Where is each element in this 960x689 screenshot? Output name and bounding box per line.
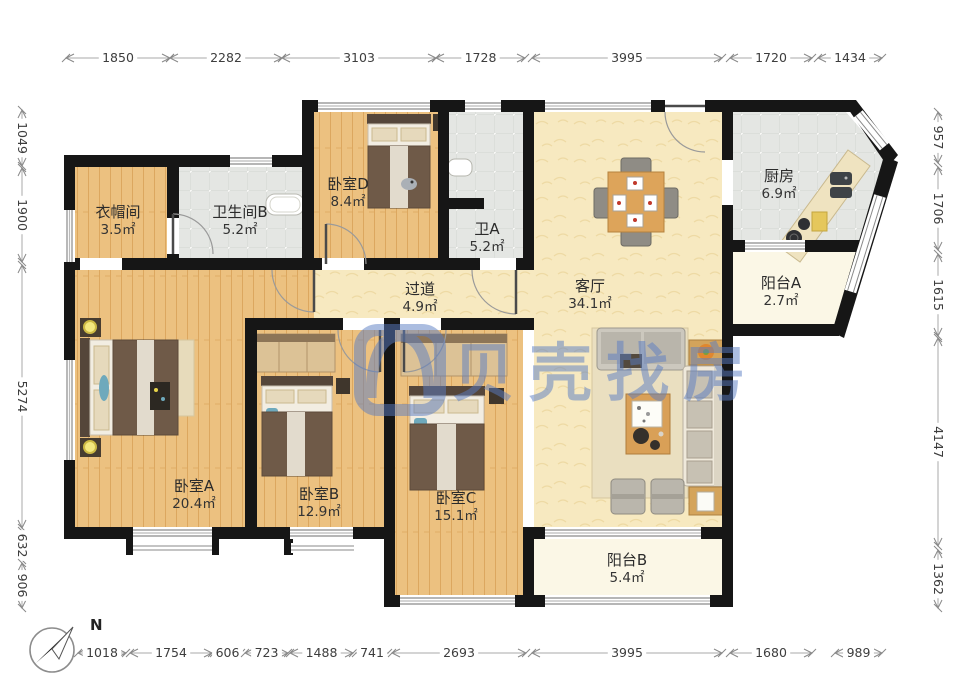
dim-right-2: 1615: [930, 250, 946, 340]
furniture-item: [659, 432, 664, 437]
dim-top-1: 2282: [166, 50, 286, 66]
compass: N: [30, 616, 103, 672]
wall-segment: [523, 112, 534, 270]
dim-top-0: 1850: [62, 50, 174, 66]
furniture-item: [633, 428, 649, 444]
dim-left-3: 632: [14, 527, 30, 564]
svg-text:2693: 2693: [443, 645, 475, 660]
room-name: 卧室A: [174, 477, 215, 495]
room-area: 6.9㎡: [762, 186, 797, 202]
svg-text:1434: 1434: [834, 50, 866, 65]
window: [545, 100, 651, 112]
room-name: 阳台B: [607, 551, 647, 569]
dim-top-6: 1434: [814, 50, 886, 66]
svg-text:4147: 4147: [931, 426, 946, 458]
svg-text:1488: 1488: [306, 645, 338, 660]
svg-text:1018: 1018: [86, 645, 118, 660]
room-name: 阳台A: [761, 274, 802, 292]
svg-text:1850: 1850: [102, 50, 134, 65]
room-area: 5.2㎡: [223, 222, 258, 238]
svg-text:1362: 1362: [931, 563, 946, 595]
furniture-item: [336, 378, 350, 394]
furniture-item: [150, 382, 170, 410]
svg-text:906: 906: [15, 574, 30, 598]
room-label-cloakroom: 衣帽间3.5㎡: [95, 203, 140, 238]
svg-text:1754: 1754: [155, 645, 187, 660]
dim-bottom-6: 2693: [388, 645, 530, 661]
furniture-item: [401, 178, 417, 190]
furniture-item: [633, 181, 637, 185]
furniture-item: [251, 334, 335, 342]
svg-text:1720: 1720: [755, 50, 787, 65]
svg-text:2282: 2282: [210, 50, 242, 65]
furniture-item: [687, 431, 712, 458]
window: [400, 595, 515, 607]
wall-segment: [245, 318, 343, 330]
wall-segment: [384, 318, 395, 607]
svg-text:3103: 3103: [343, 50, 375, 65]
wall-segment: [438, 112, 449, 270]
room-area: 5.2㎡: [470, 239, 505, 255]
wall-segment: [441, 318, 534, 330]
furniture-item: [287, 412, 305, 476]
dim-top-3: 1728: [432, 50, 529, 66]
furniture-item: [812, 212, 827, 231]
svg-text:3995: 3995: [611, 645, 643, 660]
wall-segment: [122, 258, 322, 270]
wall-segment: [167, 167, 179, 218]
furniture-item: [687, 461, 712, 483]
furniture-item: [617, 201, 621, 205]
dim-bottom-8: 1680: [726, 645, 816, 661]
furniture-item: [266, 390, 294, 403]
furniture-item: [633, 218, 637, 222]
dim-top-4: 3995: [528, 50, 726, 66]
svg-text:723: 723: [255, 645, 279, 660]
floor-plan-page: 贝壳找房 衣帽间3.5㎡卫生间B5.2㎡卧室D8.4㎡卫A5.2㎡厨房6.9㎡阳…: [0, 0, 960, 689]
window: [290, 527, 353, 539]
room-label-hallway: 过道4.9㎡: [403, 280, 438, 315]
dim-left-2: 5274: [14, 261, 30, 532]
dim-right-4: 1362: [930, 546, 946, 612]
dim-right-3: 4147: [930, 334, 946, 550]
dim-left-4: 906: [14, 559, 30, 612]
room-area: 20.4㎡: [172, 496, 216, 512]
dim-right-1: 1706: [930, 163, 946, 254]
room-area: 15.1㎡: [434, 508, 478, 524]
furniture-item: [798, 218, 810, 230]
room-name: 厨房: [764, 167, 794, 185]
wall-segment: [64, 155, 314, 167]
window: [133, 527, 212, 539]
wall-segment: [302, 100, 314, 270]
svg-text:1728: 1728: [465, 50, 497, 65]
room-name: 卧室C: [436, 489, 476, 507]
furniture-item: [261, 376, 333, 386]
furniture-item: [697, 492, 714, 511]
svg-text:957: 957: [931, 126, 946, 150]
window: [64, 360, 75, 460]
window: [745, 240, 805, 252]
furniture-item: [298, 390, 326, 403]
dim-bottom-9: 989: [831, 645, 886, 661]
room-name: 卧室B: [299, 485, 339, 503]
wall-segment: [438, 198, 484, 209]
dim-top-5: 1720: [726, 50, 816, 66]
furniture-item: [648, 201, 652, 205]
window: [465, 100, 501, 112]
dim-bottom-0: 1018: [74, 645, 130, 661]
window: [318, 100, 430, 112]
room-area: 2.7㎡: [764, 293, 799, 309]
furniture-item: [611, 494, 645, 499]
watermark-text: 贝壳找房: [452, 337, 760, 410]
room-label-balcony-a: 阳台A2.7㎡: [761, 274, 802, 309]
window: [545, 527, 701, 539]
dim-bottom-2: 606: [210, 645, 245, 661]
svg-text:1049: 1049: [15, 122, 30, 154]
svg-text:1706: 1706: [931, 193, 946, 225]
svg-text:632: 632: [15, 534, 30, 558]
furniture-item: [367, 114, 431, 124]
furniture-item: [650, 440, 660, 450]
bay-window: [126, 539, 219, 555]
furniture-item: [411, 181, 414, 184]
window: [545, 595, 710, 607]
dim-bottom-7: 3995: [528, 645, 726, 661]
room-area: 34.1㎡: [568, 296, 612, 312]
dim-bottom-5: 741: [352, 645, 392, 661]
wall-segment: [245, 318, 257, 527]
room-label-bedroom-a: 卧室A20.4㎡: [172, 477, 216, 512]
window: [230, 155, 272, 167]
furniture-item: [99, 375, 109, 401]
svg-text:606: 606: [216, 645, 240, 660]
furniture-item: [372, 128, 397, 141]
svg-text:5274: 5274: [15, 381, 30, 413]
room-area: 8.4㎡: [331, 194, 366, 210]
furniture-item: [643, 420, 646, 423]
room-name: 衣帽间: [95, 203, 140, 221]
svg-text:741: 741: [360, 645, 384, 660]
furniture-item: [651, 494, 684, 499]
wall-segment: [733, 324, 839, 336]
room-area: 5.4㎡: [610, 570, 645, 586]
dim-right-0: 957: [930, 108, 946, 167]
dim-bottom-3: 723: [241, 645, 292, 661]
furniture-item: [154, 388, 158, 392]
dim-bottom-4: 1488: [286, 645, 357, 661]
svg-text:1615: 1615: [931, 279, 946, 311]
wall-segment: [516, 258, 534, 270]
room-name: 客厅: [575, 277, 605, 295]
room-name: 卫生间B: [212, 203, 267, 221]
room-label-bedroom-b: 卧室B12.9㎡: [297, 485, 341, 520]
room-name: 卧室D: [327, 175, 369, 193]
room-label-kitchen: 厨房6.9㎡: [762, 167, 797, 202]
room-label-bedroom-d: 卧室D8.4㎡: [327, 175, 369, 210]
furniture-item: [390, 146, 408, 208]
room-area: 4.9㎡: [403, 299, 438, 315]
room-name: 过道: [405, 280, 435, 298]
dim-bottom-1: 1754: [126, 645, 216, 661]
svg-text:1900: 1900: [15, 199, 30, 231]
dim-left-0: 1049: [14, 106, 30, 170]
wall-segment: [722, 100, 733, 160]
furniture-item: [437, 424, 456, 490]
furniture-item: [845, 177, 848, 180]
svg-text:1680: 1680: [755, 645, 787, 660]
north-label: N: [90, 616, 103, 634]
furniture-item: [84, 321, 96, 333]
room-name: 卫A: [474, 220, 500, 238]
window: [64, 210, 75, 262]
furniture-item: [830, 187, 852, 198]
floor-plan: 贝壳找房 衣帽间3.5㎡卫生间B5.2㎡卧室D8.4㎡卫A5.2㎡厨房6.9㎡阳…: [0, 0, 960, 689]
svg-text:989: 989: [847, 645, 871, 660]
wall-segment: [364, 258, 480, 270]
svg-text:3995: 3995: [611, 50, 643, 65]
room-label-balcony-b: 阳台B5.4㎡: [607, 551, 647, 586]
furniture-item: [161, 397, 165, 401]
room-label-bedroom-c: 卧室C15.1㎡: [434, 489, 478, 524]
room-area: 12.9㎡: [297, 504, 341, 520]
bay-window: [284, 539, 354, 555]
furniture-item: [448, 159, 472, 176]
furniture-item: [84, 441, 96, 453]
furniture-item: [830, 172, 852, 185]
dim-left-1: 1900: [14, 164, 30, 266]
furniture-item: [646, 412, 650, 416]
room-area: 3.5㎡: [101, 222, 136, 238]
furniture-item: [80, 338, 90, 437]
furniture-item: [401, 128, 426, 141]
dim-top-2: 3103: [278, 50, 440, 66]
